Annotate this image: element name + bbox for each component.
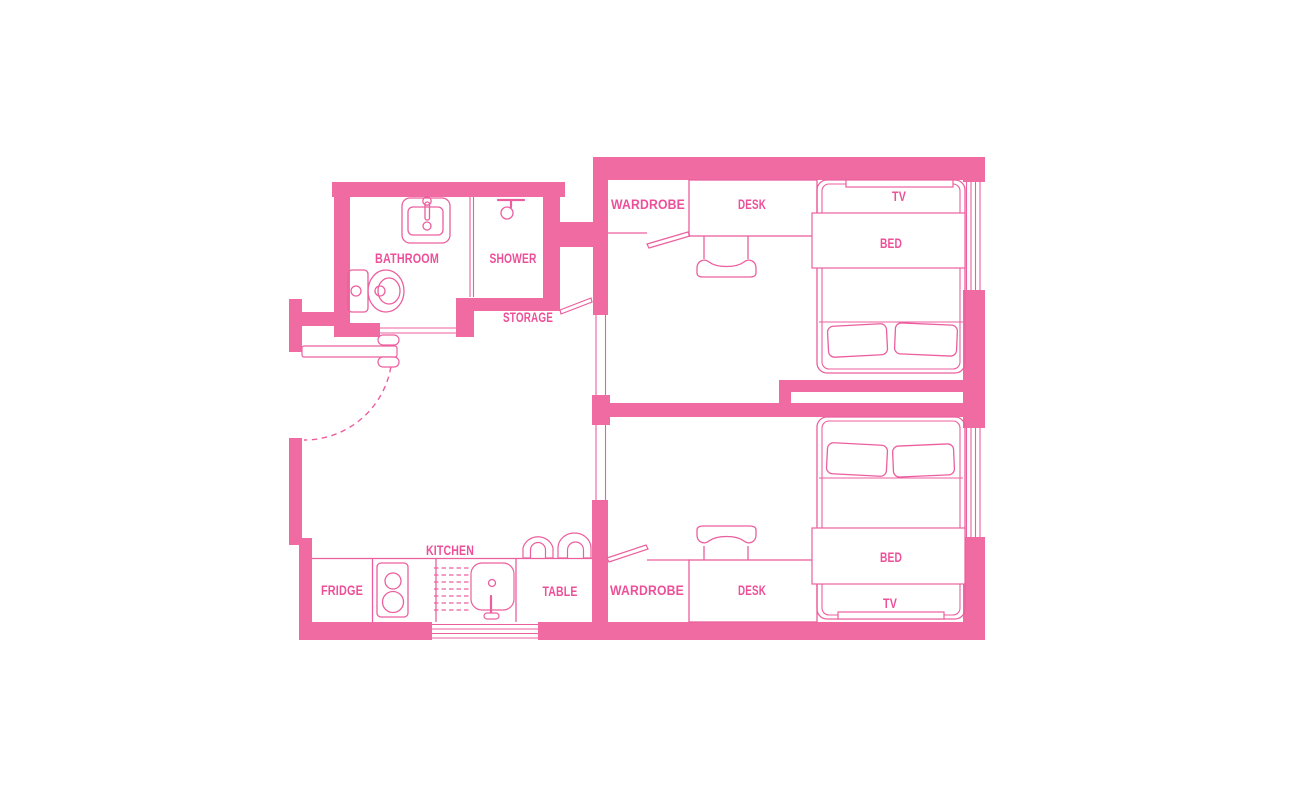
chair-arch	[523, 537, 553, 558]
bed-frame	[817, 180, 965, 373]
bedroom1-doorway	[596, 315, 606, 395]
wall-corridor-top	[593, 157, 608, 315]
label-table: TABLE	[543, 584, 578, 599]
wall-entry-arm	[300, 312, 336, 326]
entrance-door	[302, 335, 399, 440]
floor-plan-page: BATHROOM SHOWER STORAGE KITCHEN FRIDGE T…	[0, 0, 1300, 800]
toilet-flush	[375, 286, 385, 296]
hob-burner-large	[383, 592, 404, 613]
label-kitchen: KITCHEN	[426, 543, 474, 558]
shower-head-icon	[498, 200, 524, 219]
shower-partition	[470, 197, 474, 297]
bathroom-pocket-door	[380, 328, 456, 333]
hob-burner-small	[385, 573, 401, 589]
door-handle	[378, 335, 399, 345]
pillow	[827, 323, 888, 357]
sink-tap-handle	[484, 613, 499, 619]
desk-chair	[697, 260, 756, 277]
hob-outline	[377, 563, 408, 617]
shower-head	[501, 207, 513, 219]
toilet-bowl-inner	[378, 278, 400, 304]
tv-unit	[838, 612, 944, 619]
wall-bed-niche-connector	[779, 380, 791, 417]
bed-frame-inner	[822, 184, 960, 369]
label-bedroom2-desk: DESK	[738, 583, 766, 598]
label-shower: SHOWER	[490, 251, 537, 266]
pillow	[826, 442, 888, 476]
bedroom1-wardrobe-door-leaf	[647, 232, 690, 248]
hob	[377, 563, 408, 617]
label-bedroom2-tv: TV	[883, 596, 897, 611]
bedroom2-doorway	[596, 425, 606, 500]
dining-chairs	[523, 533, 591, 558]
desk-chair	[697, 526, 756, 543]
bedroom2-wardrobe-door-leaf	[607, 545, 648, 562]
label-storage: STORAGE	[503, 310, 553, 325]
wall-corridor-bottom	[592, 500, 608, 640]
door-handle	[378, 357, 399, 367]
wall-left-lower-a	[289, 438, 302, 545]
wall-right-mid	[963, 290, 985, 428]
label-bedroom2-bed: BED	[880, 550, 902, 565]
label-bedroom1-bed: BED	[880, 236, 902, 251]
bed-frame-inner	[822, 421, 960, 615]
sink-drain	[423, 222, 431, 230]
toilet	[348, 270, 404, 312]
wall-right-top	[963, 157, 985, 182]
label-bedroom1-tv: TV	[892, 189, 906, 204]
label-bedroom1-wardrobe: WARDROBE	[611, 197, 685, 212]
toilet-bowl	[368, 270, 404, 312]
window-kitchen	[432, 625, 538, 639]
wall-bathroom-top	[332, 182, 565, 197]
drainer	[434, 568, 470, 610]
tv-unit	[846, 180, 953, 187]
wall-shower-right	[543, 182, 560, 302]
window-bedroom2	[967, 428, 981, 537]
pillow	[894, 323, 957, 357]
wall-top-bedrooms	[593, 157, 985, 180]
pillow	[892, 444, 954, 478]
wall-bed-niche	[779, 380, 973, 392]
label-bathroom: BATHROOM	[375, 251, 439, 266]
storage-door-leaf	[560, 298, 592, 314]
bed-frame	[817, 417, 965, 619]
label-bedroom1-desk: DESK	[738, 197, 766, 212]
window-bedroom1	[967, 182, 981, 290]
wall-bathroom-left	[334, 182, 350, 337]
wall-bathroom-bottom-left	[334, 323, 380, 337]
wall-bottom-right	[538, 622, 985, 640]
door-swing-arc	[304, 357, 392, 440]
label-bedroom2-wardrobe: WARDROBE	[610, 583, 684, 598]
door-leaf	[302, 346, 397, 357]
bedroom2-furniture	[647, 417, 965, 622]
chair-arch	[558, 533, 591, 558]
label-fridge: FRIDGE	[321, 583, 363, 598]
wall-bottom-left	[300, 622, 432, 640]
bathroom-sink	[402, 197, 450, 243]
floor-plan: BATHROOM SHOWER STORAGE KITCHEN FRIDGE T…	[0, 0, 1300, 800]
kitchen-sink	[471, 563, 514, 619]
toilet-button	[351, 286, 361, 296]
